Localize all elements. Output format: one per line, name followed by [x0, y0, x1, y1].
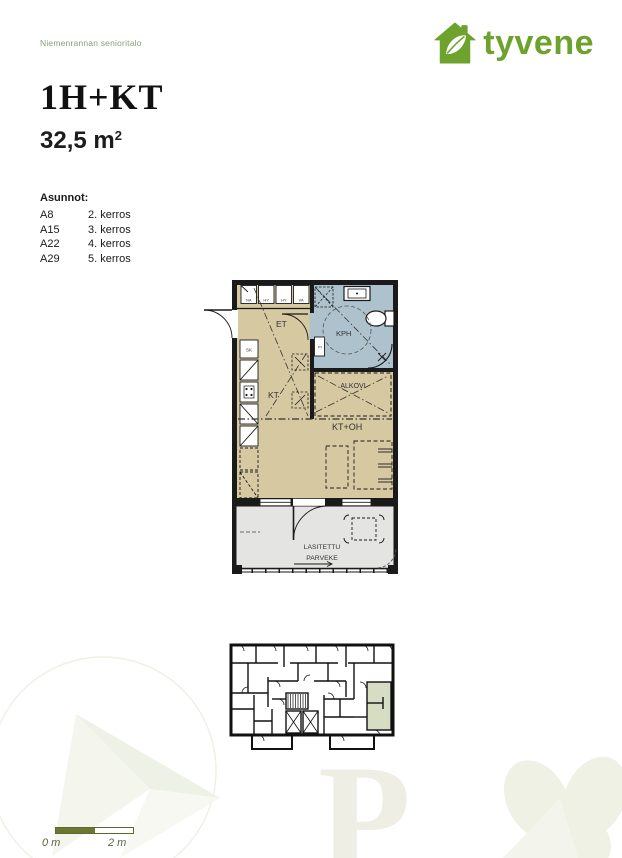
room-label-kt-oh: KT+OH	[332, 422, 362, 432]
entry-door	[204, 310, 232, 338]
closet-label-hy: HY	[281, 298, 287, 303]
apartment-code: A8	[40, 209, 88, 221]
apartment-type-title: 1H+KT	[40, 78, 164, 118]
apartment-row: A22 4. kerros	[40, 237, 131, 252]
closet-label-hy: HY	[263, 298, 269, 303]
room-label-balcony-1: LASITETTU	[304, 544, 341, 551]
apartment-code: A15	[40, 224, 88, 236]
room-label-et: ET	[276, 319, 287, 329]
floorplan-page: P Niemenrannan senioritalo tyvene 1H+KT …	[0, 0, 622, 858]
room-label-kt: KT	[268, 390, 279, 400]
apartment-row: A8 2. kerros	[40, 208, 131, 223]
overview-balconies	[252, 735, 390, 749]
title-block: 1H+KT 32,5 m2	[40, 78, 164, 155]
house-leaf-icon	[434, 22, 476, 64]
closet-label-va: VA	[299, 298, 304, 303]
apartment-code: A29	[40, 253, 88, 265]
apartments-label: Asunnot:	[40, 192, 131, 204]
apartment-row: A15 3. kerros	[40, 223, 131, 238]
highlighted-apartment	[367, 682, 391, 730]
scale-bar-fill	[56, 828, 95, 833]
project-name: Niemenrannan senioritalo	[40, 38, 142, 48]
brand-wordmark: tyvene	[483, 26, 594, 60]
apartment-row: A29 5. kerros	[40, 252, 131, 267]
scale-bar-graphic	[55, 827, 134, 834]
area-value: 32,5 m	[40, 127, 115, 154]
apartment-floor: 4. kerros	[88, 238, 131, 250]
brand-logo: tyvene	[434, 22, 594, 64]
scale-bar: 0 m 2 m	[42, 825, 162, 851]
scale-end-label: 2 m	[108, 837, 126, 849]
room-label-alkovi: ALKOVI	[340, 383, 365, 390]
fixture-label-py: PY	[318, 346, 323, 350]
closet-label-na: NA	[246, 298, 252, 303]
window-symbol	[260, 499, 291, 506]
area-superscript: 2	[115, 128, 122, 143]
apartment-floor: 5. kerros	[88, 253, 131, 265]
main-floor-plan: NA HY HY VA	[202, 280, 398, 582]
apartment-floor: 3. kerros	[88, 224, 131, 236]
room-label-kph: KPH	[336, 329, 351, 338]
scale-start-label: 0 m	[42, 837, 60, 849]
closet-label-sk: SK	[246, 348, 252, 353]
apartment-code: A22	[40, 238, 88, 250]
room-label-balcony-2: PARVEKE	[306, 555, 338, 562]
window-symbol	[342, 499, 371, 506]
apartment-area: 32,5 m2	[40, 127, 164, 155]
apartments-section: Asunnot: A8 2. kerros A15 3. kerros A22 …	[40, 192, 131, 266]
building-overview-plan	[228, 637, 396, 764]
apartment-floor: 2. kerros	[88, 209, 131, 221]
